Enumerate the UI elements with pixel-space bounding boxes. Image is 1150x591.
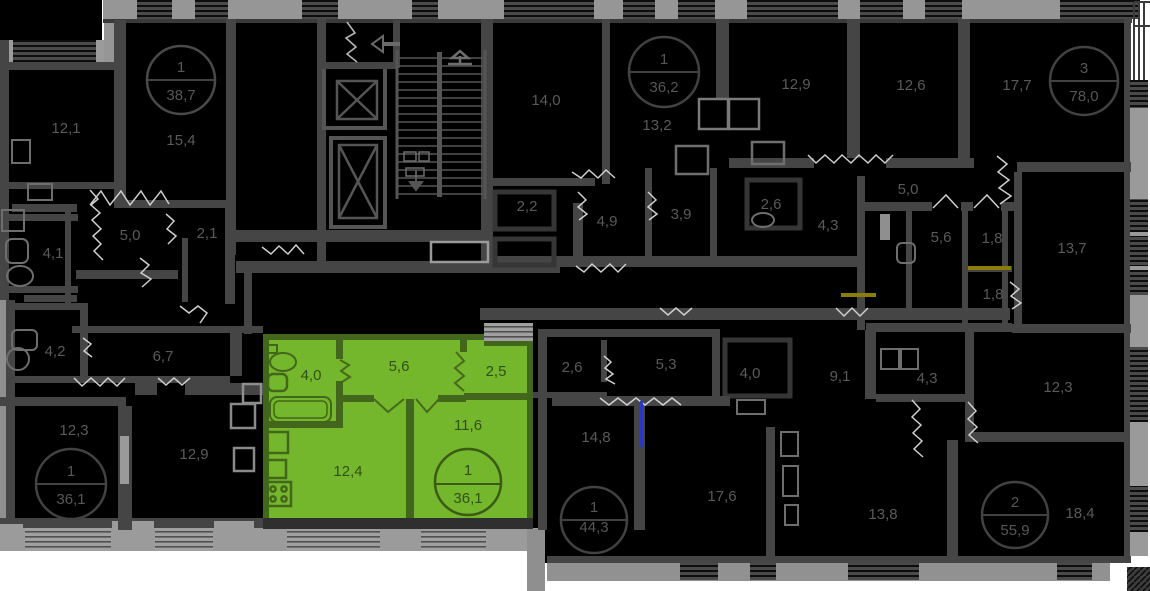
svg-text:2,2: 2,2 [517, 198, 538, 215]
svg-text:5,0: 5,0 [120, 227, 141, 244]
svg-text:1: 1 [590, 499, 598, 516]
svg-text:3,9: 3,9 [671, 206, 692, 223]
svg-text:17,7: 17,7 [1002, 77, 1031, 94]
svg-text:36,2: 36,2 [649, 79, 678, 96]
svg-text:13,8: 13,8 [868, 506, 897, 523]
svg-text:2,1: 2,1 [197, 225, 218, 242]
svg-text:1,8: 1,8 [982, 230, 1003, 247]
svg-text:2,6: 2,6 [761, 196, 782, 213]
svg-text:12,4: 12,4 [333, 463, 362, 480]
svg-text:4,9: 4,9 [597, 213, 618, 230]
svg-text:4,3: 4,3 [917, 370, 938, 387]
svg-text:4,2: 4,2 [45, 343, 66, 360]
svg-text:4,0: 4,0 [301, 367, 322, 384]
svg-text:38,7: 38,7 [166, 87, 195, 104]
svg-text:2,6: 2,6 [562, 359, 583, 376]
svg-text:17,6: 17,6 [707, 488, 736, 505]
svg-text:12,1: 12,1 [51, 120, 80, 137]
svg-text:36,1: 36,1 [453, 490, 482, 507]
svg-text:14,0: 14,0 [531, 92, 560, 109]
svg-text:12,3: 12,3 [1043, 379, 1072, 396]
svg-text:1: 1 [660, 51, 668, 68]
svg-text:6,7: 6,7 [153, 348, 174, 365]
svg-text:1: 1 [177, 59, 185, 76]
svg-text:4,3: 4,3 [818, 217, 839, 234]
svg-text:9,1: 9,1 [830, 368, 851, 385]
svg-text:55,9: 55,9 [1000, 522, 1029, 539]
svg-text:5,0: 5,0 [898, 181, 919, 198]
svg-text:13,2: 13,2 [642, 117, 671, 134]
svg-text:18,4: 18,4 [1065, 505, 1094, 522]
svg-text:36,1: 36,1 [56, 491, 85, 508]
svg-text:2,5: 2,5 [486, 363, 507, 380]
svg-text:5,6: 5,6 [931, 229, 952, 246]
svg-text:1: 1 [67, 463, 75, 480]
svg-text:12,9: 12,9 [179, 446, 208, 463]
svg-text:44,3: 44,3 [579, 519, 608, 536]
svg-text:11,6: 11,6 [454, 417, 482, 434]
svg-text:5,3: 5,3 [656, 356, 677, 373]
svg-text:5,6: 5,6 [389, 358, 410, 375]
svg-text:15,4: 15,4 [166, 132, 195, 149]
svg-text:4,0: 4,0 [740, 365, 761, 382]
svg-text:78,0: 78,0 [1069, 88, 1098, 105]
svg-text:3: 3 [1080, 60, 1088, 77]
svg-text:12,6: 12,6 [896, 77, 925, 94]
svg-text:1,8: 1,8 [983, 286, 1004, 303]
svg-text:14,8: 14,8 [581, 429, 610, 446]
svg-text:2: 2 [1011, 494, 1019, 511]
svg-text:13,7: 13,7 [1057, 240, 1086, 257]
svg-text:12,3: 12,3 [59, 422, 88, 439]
svg-text:1: 1 [464, 462, 472, 479]
svg-text:12,9: 12,9 [781, 76, 810, 93]
svg-text:4,1: 4,1 [43, 245, 64, 262]
